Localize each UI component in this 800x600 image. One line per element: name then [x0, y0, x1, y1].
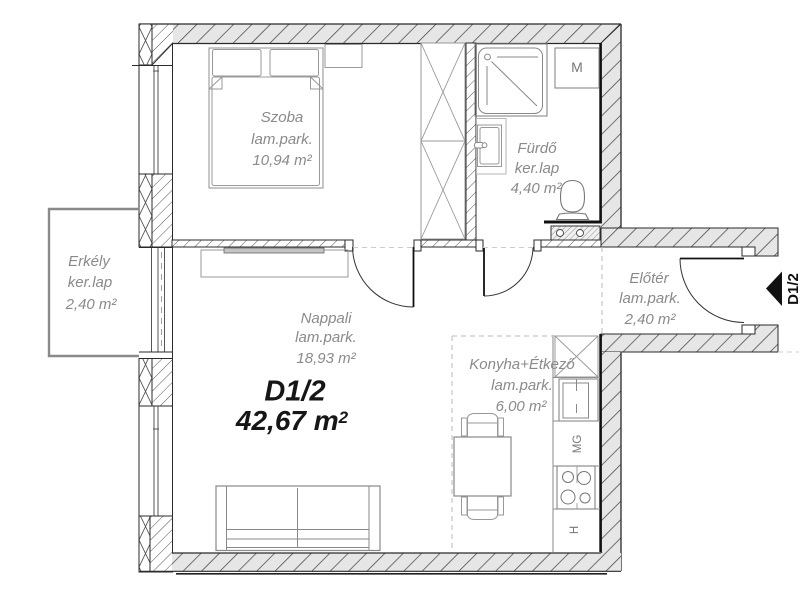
- svg-text:D1/2: D1/2: [785, 273, 800, 305]
- svg-text:H: H: [569, 526, 581, 534]
- svg-text:ker.lap: ker.lap: [515, 160, 559, 177]
- svg-text:M: M: [571, 59, 583, 75]
- svg-text:2,40 m²: 2,40 m²: [624, 311, 677, 328]
- svg-text:Szoba: Szoba: [261, 109, 304, 126]
- svg-text:Erkély: Erkély: [68, 253, 111, 270]
- svg-text:MG: MG: [572, 435, 584, 454]
- svg-text:lam.park.: lam.park.: [295, 329, 357, 346]
- svg-text:Előtér: Előtér: [629, 270, 669, 287]
- svg-text:6,00 m²: 6,00 m²: [496, 398, 548, 415]
- svg-text:2,40 m²: 2,40 m²: [65, 296, 118, 313]
- svg-text:ker.lap: ker.lap: [68, 274, 112, 291]
- svg-text:18,93 m²: 18,93 m²: [296, 350, 356, 367]
- svg-text:4,40 m²: 4,40 m²: [511, 180, 563, 197]
- svg-text:10,94 m²: 10,94 m²: [252, 152, 312, 169]
- svg-text:lam.park.: lam.park.: [251, 131, 313, 148]
- svg-text:lam.park.: lam.park.: [619, 290, 681, 307]
- svg-text:D1/2: D1/2: [264, 376, 325, 408]
- svg-text:Nappali: Nappali: [301, 310, 353, 327]
- svg-text:Konyha+Étkező: Konyha+Étkező: [469, 356, 575, 373]
- svg-text:42,67 m2: 42,67 m2: [235, 405, 349, 436]
- svg-text:lam.park.: lam.park.: [491, 377, 553, 394]
- svg-text:Fürdő: Fürdő: [517, 140, 557, 157]
